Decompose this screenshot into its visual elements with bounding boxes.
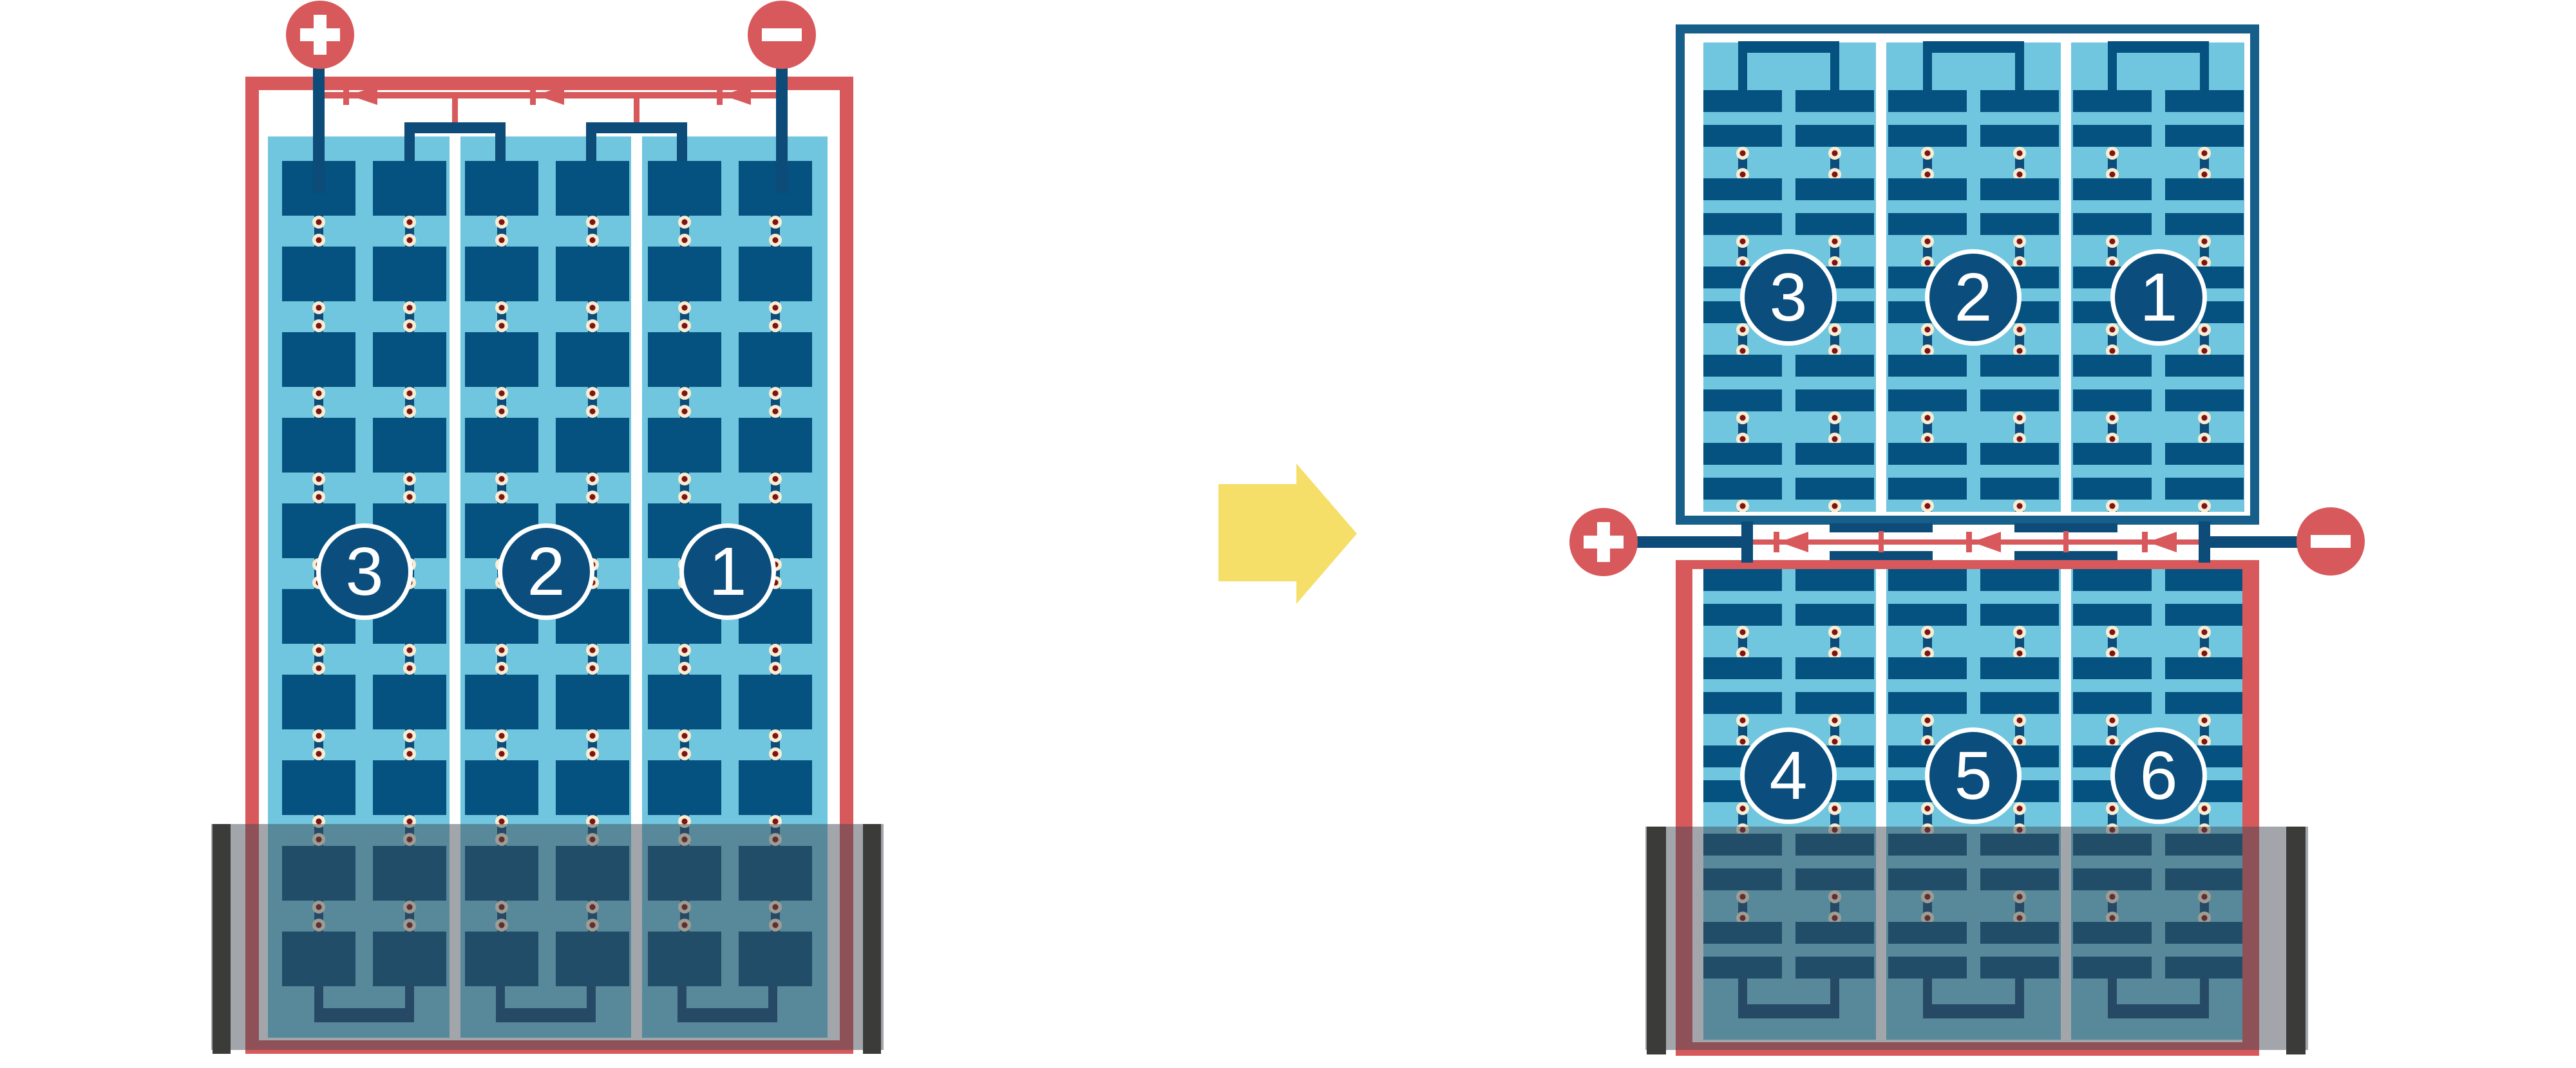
water-overlay: [1645, 827, 2308, 1050]
string-bridge-leg: [2108, 41, 2117, 90]
string-bridge-bar: [404, 122, 506, 133]
bypass-diode-arrow: [723, 86, 751, 105]
arrow-head: [1296, 464, 1357, 604]
minus-icon: [2297, 507, 2365, 576]
string-number-badge: 1: [679, 523, 776, 620]
bypass-diode-arrow: [1779, 532, 1808, 552]
string-number-badge: 5: [1925, 727, 2022, 824]
bypass-diode-arrow: [2148, 532, 2177, 552]
string-bridge-leg: [2200, 41, 2209, 90]
string-bridge-leg: [1923, 41, 1932, 90]
string-number-badge: 3: [1740, 249, 1837, 346]
diode-cathode-bar: [717, 86, 723, 105]
arrow-body: [1218, 484, 1296, 581]
diode-cathode-bar: [1966, 532, 1972, 552]
diode-tap-stub: [634, 98, 639, 123]
string-bridge-bar: [1738, 41, 1839, 53]
terminal-lead-wire: [776, 63, 788, 193]
string-bridge-bar: [2108, 41, 2209, 53]
diode-cathode-bar: [2142, 532, 2148, 552]
bypass-diode-arrow: [1972, 532, 2001, 552]
string-bridge-bar: [586, 122, 687, 133]
string-number-badge: 2: [1925, 249, 2022, 346]
string-bridge-leg: [404, 122, 415, 161]
water-overlay: [211, 824, 884, 1050]
diagram-canvas: 3 2 1 3 2 1 4 5 6: [0, 0, 2576, 1068]
diode-tap-stub: [1879, 531, 1884, 552]
diode-cathode-bar: [530, 86, 536, 105]
string-bridge-leg: [2015, 41, 2024, 90]
bypass-diode-arrow: [536, 86, 564, 105]
diode-tap-stub: [452, 98, 458, 123]
string-number-badge: 1: [2110, 249, 2207, 346]
string-bridge-leg: [586, 122, 596, 161]
water-container-wall: [863, 824, 881, 1054]
water-container-wall: [2286, 827, 2306, 1054]
string-bridge-leg: [677, 122, 687, 161]
string-bridge-bar: [1923, 41, 2024, 53]
string-number-badge: 6: [2110, 727, 2207, 824]
minus-icon: [748, 1, 816, 69]
string-number-badge: 4: [1740, 727, 1837, 824]
junction-bar: [2199, 521, 2210, 563]
bypass-diode-arrow: [349, 86, 377, 105]
junction-bar: [1741, 521, 1753, 563]
left-negative-terminal: [748, 1, 816, 69]
string-number-badge: 2: [498, 523, 594, 620]
left-positive-terminal: [286, 1, 354, 69]
string-bridge-leg: [1830, 41, 1839, 90]
string-number-badge: 3: [316, 523, 413, 620]
diode-cathode-bar: [343, 86, 349, 105]
water-container-wall: [213, 824, 231, 1054]
diode-cathode-bar: [1774, 532, 1779, 552]
string-bridge-leg: [1738, 41, 1747, 90]
junction-tab: [2014, 551, 2117, 560]
junction-tab: [1830, 551, 1933, 560]
plus-icon: [286, 1, 354, 69]
right-positive-terminal: [1569, 508, 1638, 576]
string-bridge-leg: [495, 122, 506, 161]
right-negative-terminal: [2297, 507, 2365, 576]
plus-icon: [1569, 508, 1638, 576]
water-container-wall: [1647, 827, 1666, 1054]
terminal-lead-wire: [313, 63, 325, 193]
diode-tap-stub: [2063, 531, 2069, 552]
